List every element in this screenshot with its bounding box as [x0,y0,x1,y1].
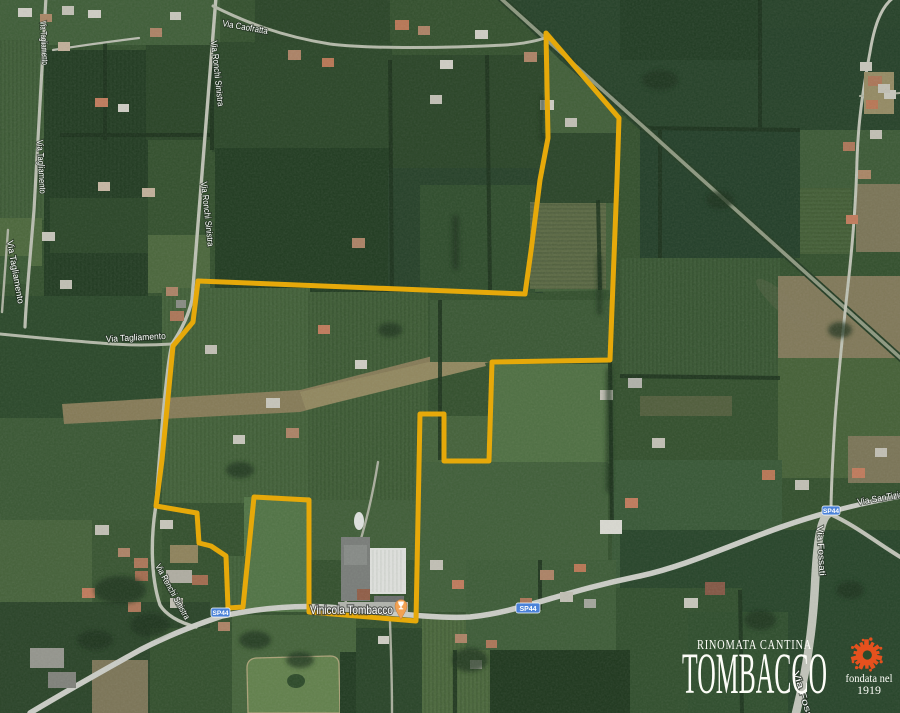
svg-text:Vinicola Tombacco: Vinicola Tombacco [310,603,393,617]
svg-text:SP44: SP44 [823,508,839,515]
svg-text:SP44: SP44 [213,610,229,617]
svg-text:SP44: SP44 [519,606,536,613]
svg-text:TOMBACCO: TOMBACCO [682,641,827,706]
svg-text:1919: 1919 [857,683,881,697]
